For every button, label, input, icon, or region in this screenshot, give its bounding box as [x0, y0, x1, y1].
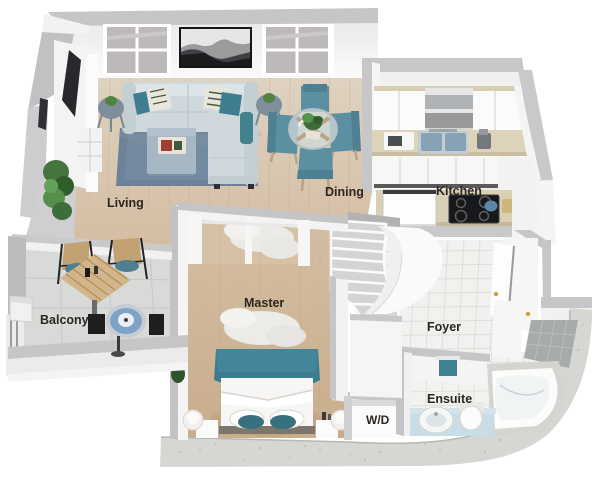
svg-text:Kitchen: Kitchen — [436, 184, 482, 198]
svg-text:Ensuite: Ensuite — [427, 392, 472, 406]
svg-text:Foyer: Foyer — [427, 320, 461, 334]
svg-text:Master: Master — [244, 296, 284, 310]
svg-text:W/D: W/D — [366, 413, 390, 427]
svg-text:Balcony: Balcony — [40, 313, 89, 327]
svg-text:Dining: Dining — [325, 185, 364, 199]
svg-text:Living: Living — [107, 196, 144, 210]
